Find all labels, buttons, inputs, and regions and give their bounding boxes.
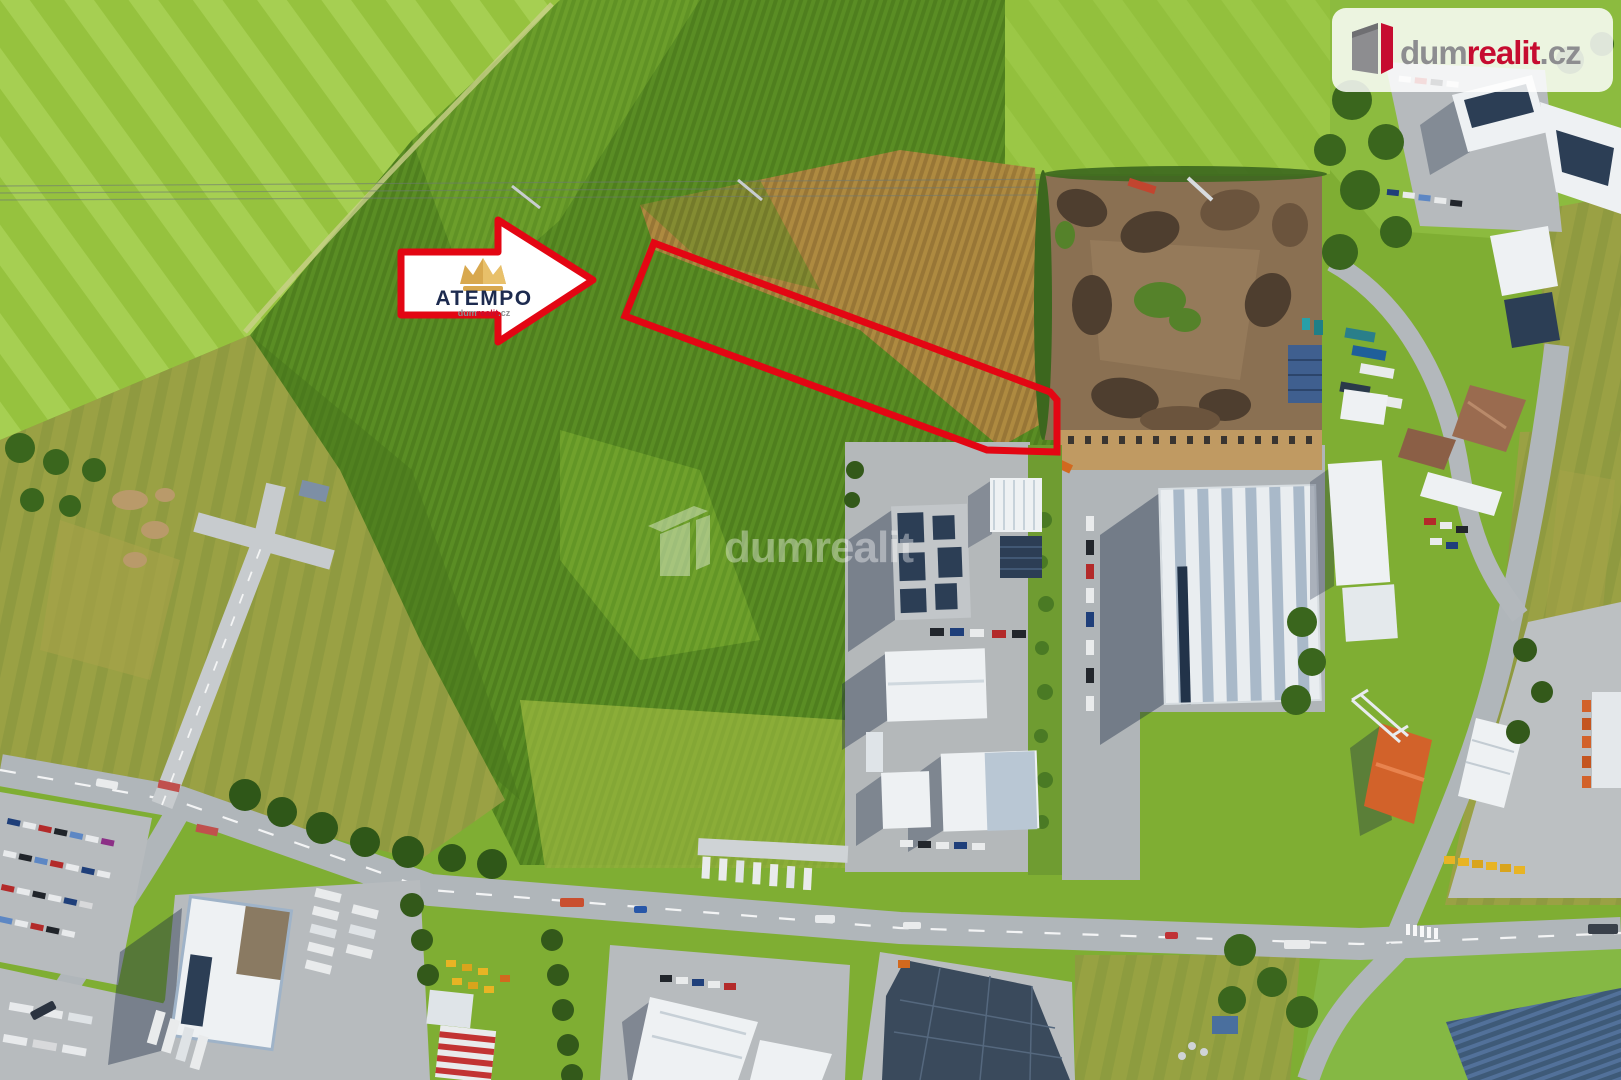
car-column	[1086, 516, 1094, 711]
dumrealit-logo-card: dumrealit.cz	[1332, 8, 1613, 92]
dumrealit-logo-icon	[1352, 23, 1393, 74]
atempo-title: ATEMPO	[435, 287, 532, 310]
excavator	[898, 960, 910, 968]
right-edge-building	[1592, 692, 1621, 788]
watermark-text: dumrealit	[724, 523, 914, 572]
depot-building	[1340, 389, 1388, 425]
building-east-hall	[1328, 460, 1390, 585]
dumrealit-logo-text: dumrealit.cz	[1400, 34, 1581, 71]
building-solar-flat	[1000, 536, 1042, 578]
aerial-photo-stage: dumrealit ATEMPO dumrealit.cz dumrealit.…	[0, 0, 1621, 1080]
small-building	[426, 990, 473, 1028]
blue-shack	[1212, 1016, 1238, 1034]
compost-facility	[1034, 166, 1327, 440]
red-white-stack	[435, 1025, 496, 1080]
aerial-photo: dumrealit ATEMPO dumrealit.cz dumrealit.…	[0, 0, 1621, 1080]
small-shed	[866, 732, 883, 772]
atempo-subtitle: dumrealit.cz	[458, 308, 511, 318]
